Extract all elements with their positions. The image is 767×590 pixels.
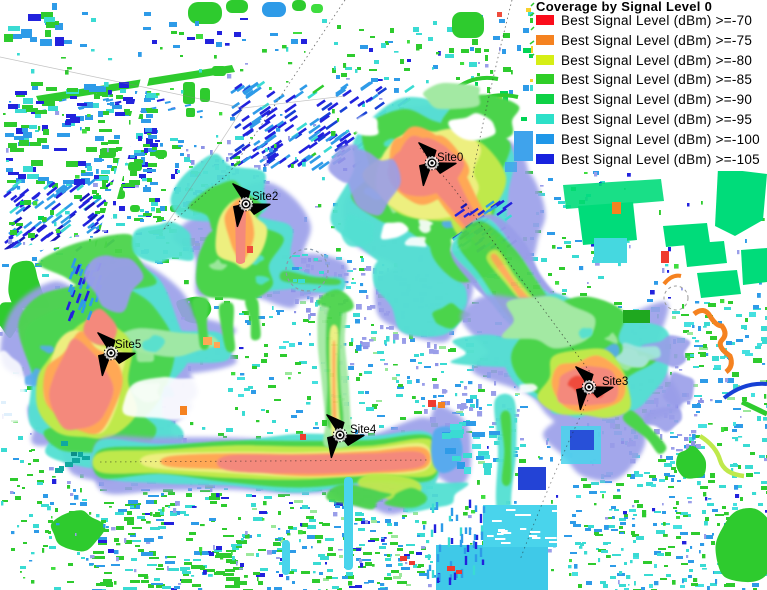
svg-text:Site5: Site5: [115, 339, 141, 351]
svg-text:Site3: Site3: [602, 376, 628, 388]
svg-text:Site4: Site4: [350, 424, 377, 436]
svg-text:Site0: Site0: [437, 152, 463, 164]
svg-text:Site2: Site2: [252, 191, 278, 203]
